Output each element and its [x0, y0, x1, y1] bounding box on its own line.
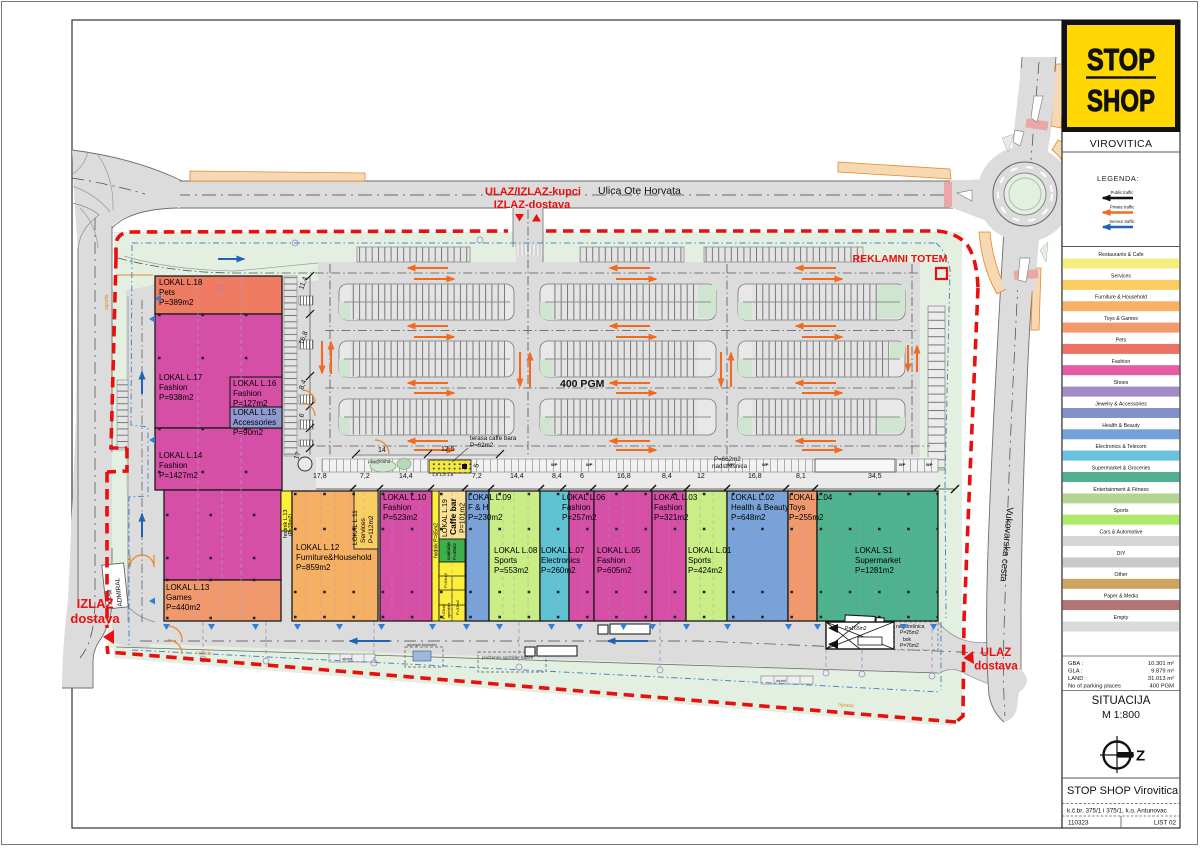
svg-text:LAND :: LAND : — [1068, 676, 1087, 682]
svg-text:ULAZ: ULAZ — [981, 647, 1012, 659]
svg-text:playground: playground — [368, 459, 391, 464]
svg-text:STOP SHOP Virovitica: STOP SHOP Virovitica — [1067, 785, 1179, 797]
svg-text:No of parking places: No of parking places — [1068, 684, 1121, 690]
svg-text:sanitarije: sanitarije — [446, 541, 451, 560]
svg-text:7,2: 7,2 — [360, 473, 370, 480]
svg-text:16,8: 16,8 — [748, 473, 762, 480]
svg-text:10.301 m²: 10.301 m² — [1148, 661, 1174, 667]
svg-text:WP: WP — [926, 462, 933, 467]
svg-text:17,8: 17,8 — [313, 473, 327, 480]
svg-text:Pets: Pets — [1116, 337, 1127, 343]
svg-text:Toys & Games: Toys & Games — [1104, 316, 1138, 322]
svg-text:GBA :: GBA : — [1068, 661, 1084, 667]
svg-text:8,1: 8,1 — [796, 473, 806, 480]
svg-text:WP: WP — [551, 462, 558, 467]
svg-text:SHOP: SHOP — [1087, 83, 1155, 118]
svg-text:14: 14 — [378, 447, 386, 454]
svg-text:Ulica Ote Horvata: Ulica Ote Horvata — [598, 185, 681, 197]
svg-text:GLA :: GLA : — [1068, 669, 1083, 675]
svg-text:7,2: 7,2 — [472, 473, 482, 480]
svg-text:(P=39m2): (P=39m2) — [288, 514, 294, 536]
svg-text:14,4: 14,4 — [399, 473, 413, 480]
svg-text:Caffe bar: Caffe bar — [448, 497, 458, 535]
svg-text:P=54m2: P=54m2 — [443, 572, 448, 588]
svg-text:16,8: 16,8 — [617, 473, 631, 480]
svg-text:Private traffic: Private traffic — [1110, 205, 1134, 210]
svg-text:dostava: dostava — [70, 611, 120, 626]
svg-text:Electronics & Telecom: Electronics & Telecom — [1096, 444, 1147, 450]
svg-text:P=25m2: P=25m2 — [900, 630, 919, 636]
svg-text:LIST 02: LIST 02 — [1154, 820, 1176, 827]
svg-text:P=49m2: P=49m2 — [452, 543, 457, 560]
svg-text:Services: Services — [360, 517, 367, 543]
svg-text:LEGENDA:: LEGENDA: — [1097, 174, 1139, 183]
svg-text:P=165m2: P=165m2 — [845, 626, 867, 632]
svg-text:8,4: 8,4 — [552, 473, 562, 480]
svg-text:400 PGM: 400 PGM — [1150, 684, 1175, 690]
svg-text:12: 12 — [697, 473, 705, 480]
svg-text:14,4: 14,4 — [510, 473, 524, 480]
svg-text:P=33m2: P=33m2 — [455, 599, 460, 615]
svg-text:terasa caffe bara: terasa caffe bara — [470, 435, 517, 442]
svg-text:Entertainment & Fitness: Entertainment & Fitness — [1093, 487, 1149, 493]
svg-text:IZLAZ: IZLAZ — [77, 596, 114, 611]
svg-text:k.č.br. 375/1 i 375/1, k.o. An: k.č.br. 375/1 i 375/1, k.o. Antunovac — [1067, 808, 1167, 815]
svg-text:hodnik P=65m2: hodnik P=65m2 — [434, 523, 440, 558]
svg-text:otpad: otpad — [342, 656, 352, 661]
svg-text:agregat šprinkler: agregat šprinkler — [407, 642, 437, 647]
svg-text:WP: WP — [727, 462, 734, 467]
svg-text:DIY: DIY — [1117, 551, 1126, 557]
svg-text:WP: WP — [899, 462, 906, 467]
svg-text:SITUACIJA: SITUACIJA — [1092, 695, 1151, 707]
svg-text:ULAZ/IZLAZ-kupci: ULAZ/IZLAZ-kupci — [485, 186, 581, 198]
svg-text:IZLAZ-dostava: IZLAZ-dostava — [494, 199, 571, 211]
svg-text:Restaurants & Cafe: Restaurants & Cafe — [1098, 252, 1143, 258]
svg-text:Supermarket & Groceries: Supermarket & Groceries — [1092, 466, 1151, 472]
svg-text:400 PGM: 400 PGM — [560, 378, 605, 390]
svg-text:Paper & Media: Paper & Media — [1104, 594, 1138, 600]
svg-text:6: 6 — [580, 473, 584, 480]
svg-text:VIROVITICA: VIROVITICA — [1090, 138, 1153, 150]
svg-text:otpad: otpad — [776, 678, 786, 683]
svg-text:REKLAMNI TOTEM: REKLAMNI TOTEM — [853, 253, 948, 265]
svg-text:Public traffic: Public traffic — [1111, 190, 1134, 195]
svg-text:34,5: 34,5 — [868, 473, 882, 480]
svg-text:31.013 m²: 31.013 m² — [1148, 676, 1174, 682]
svg-text:sprinkler: sprinkler — [446, 602, 451, 618]
svg-text:Fashion: Fashion — [1112, 359, 1131, 365]
svg-text:Shoes: Shoes — [1114, 380, 1129, 386]
svg-text:12,5: 12,5 — [441, 446, 455, 453]
svg-text:Z: Z — [1136, 748, 1145, 765]
svg-text:dostava: dostava — [974, 661, 1018, 673]
svg-text:Services: Services — [1111, 273, 1131, 279]
svg-text:LOKAL L.11: LOKAL L.11 — [352, 510, 359, 545]
svg-text:STOP: STOP — [1087, 42, 1155, 77]
svg-text:Service traffic: Service traffic — [1109, 219, 1134, 224]
svg-text:P=23m2: P=23m2 — [441, 603, 446, 619]
svg-text:110323: 110323 — [1068, 820, 1089, 827]
svg-text:P=112m2: P=112m2 — [368, 515, 375, 543]
svg-text:9.879 m²: 9.879 m² — [1151, 669, 1174, 675]
svg-text:Other: Other — [1115, 572, 1128, 578]
svg-text:ograda: ograda — [104, 294, 110, 310]
svg-text:Cars & Automotive: Cars & Automotive — [1100, 530, 1143, 536]
svg-text:P=62m2: P=62m2 — [470, 442, 494, 449]
svg-text:P=101m2: P=101m2 — [460, 503, 467, 533]
svg-text:Jewelry & Accessories: Jewelry & Accessories — [1095, 402, 1147, 408]
svg-text:M 1:800: M 1:800 — [1102, 709, 1140, 721]
svg-text:Health & Beauty: Health & Beauty — [1102, 423, 1140, 429]
svg-text:Empty: Empty — [1114, 615, 1129, 621]
svg-text:8,4: 8,4 — [662, 473, 672, 480]
svg-text:Sports: Sports — [1114, 508, 1129, 514]
svg-text:WP: WP — [586, 462, 593, 467]
svg-text:Furniture & Household: Furniture & Household — [1095, 295, 1147, 301]
svg-text:1,8 1,8 1,8: 1,8 1,8 1,8 — [432, 472, 454, 477]
svg-text:P=76m2: P=76m2 — [900, 643, 919, 649]
svg-text:WP: WP — [762, 462, 769, 467]
